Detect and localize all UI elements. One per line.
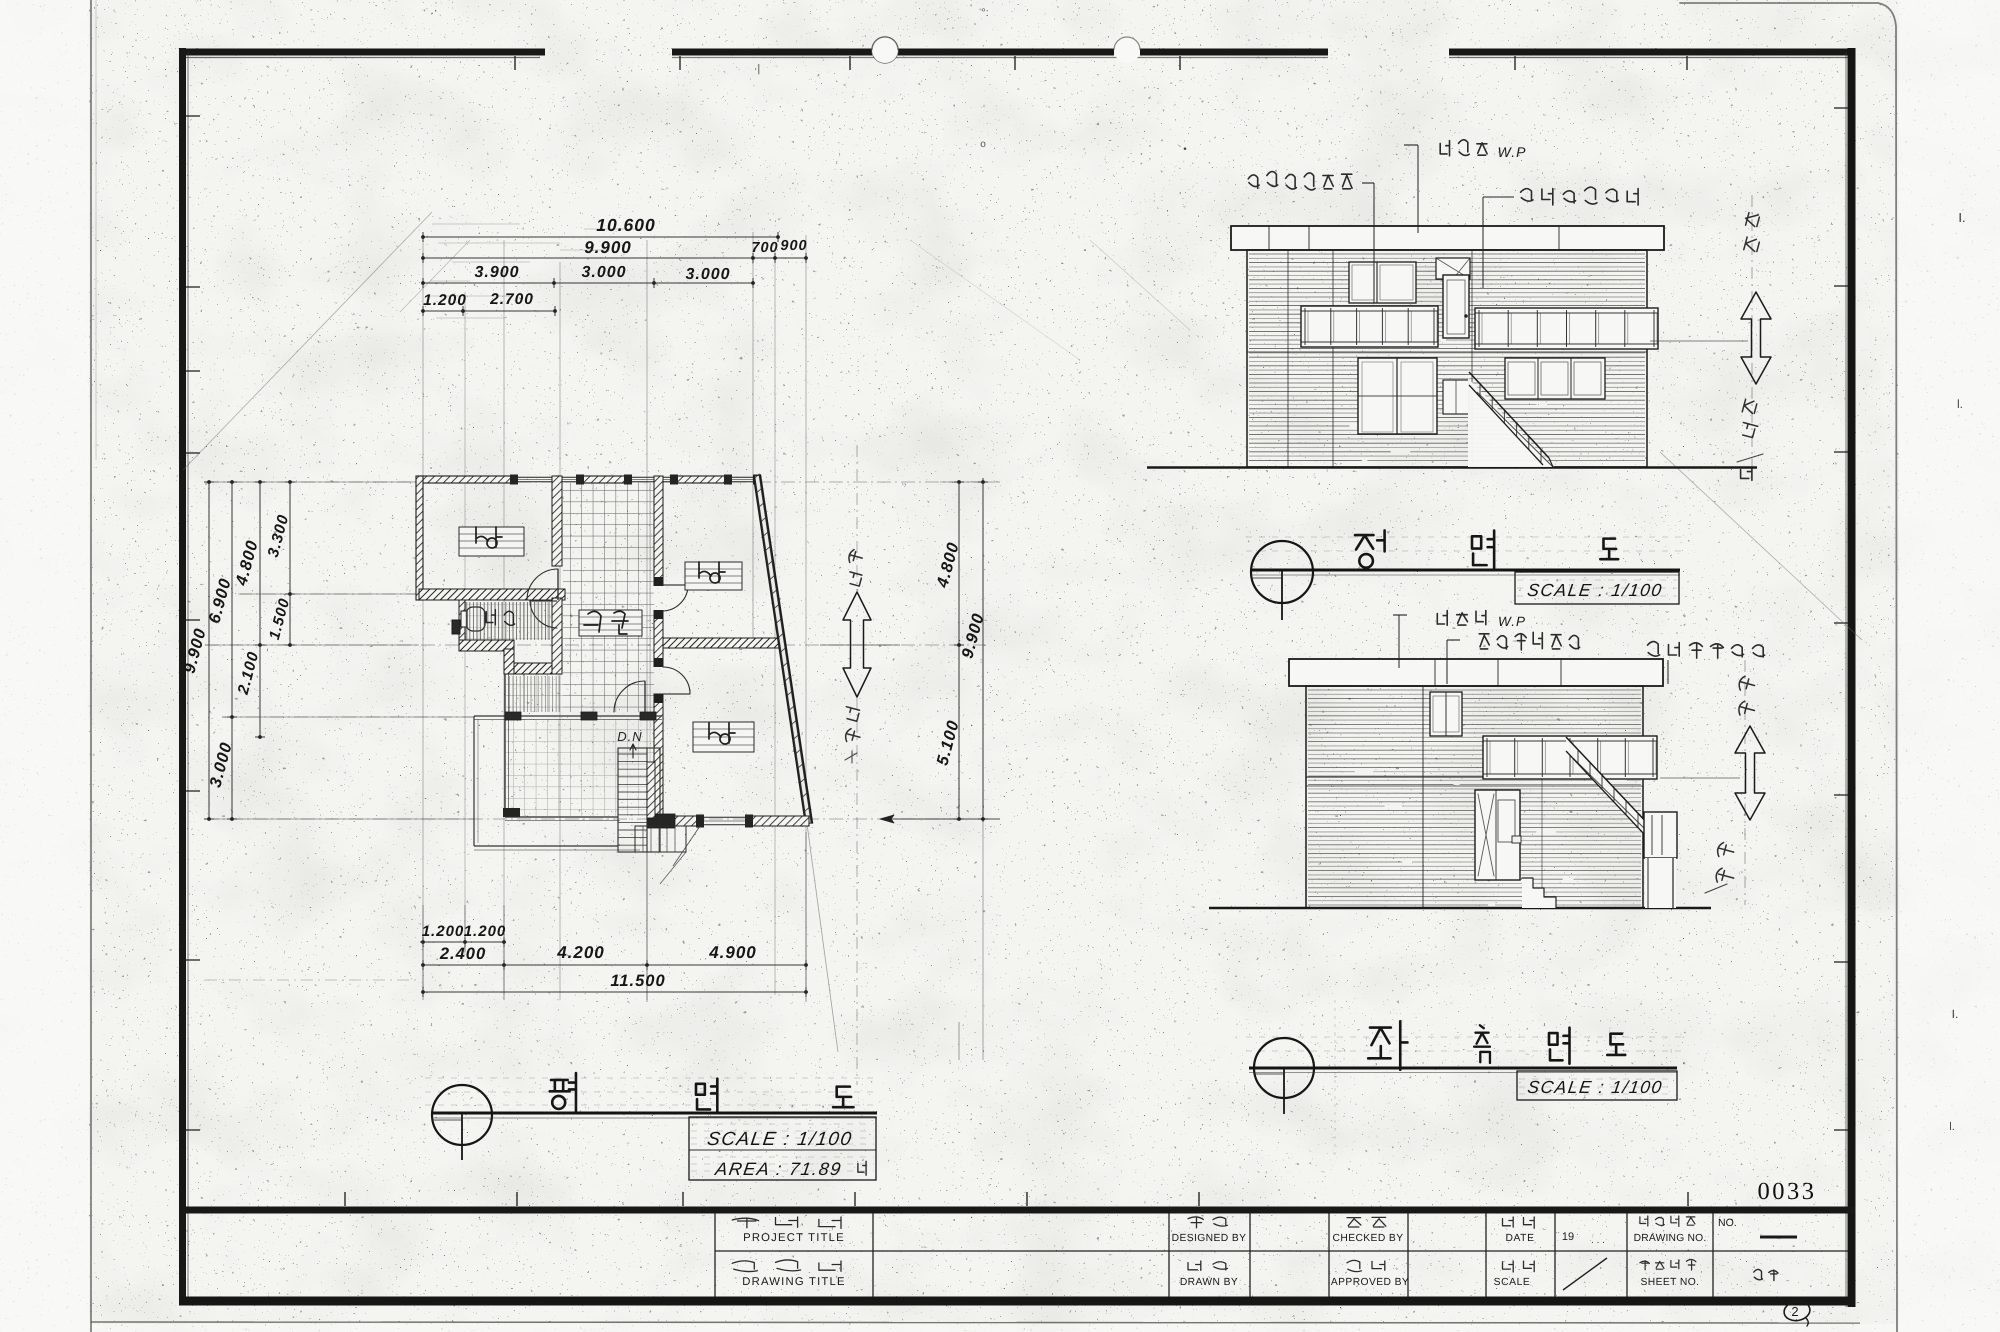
- svg-text:W.P: W.P: [1498, 144, 1527, 160]
- svg-text:SCALE : 1/100: SCALE : 1/100: [706, 1129, 854, 1150]
- svg-text:11.500: 11.500: [610, 972, 665, 990]
- svg-text:. . .: . . .: [1591, 1235, 1605, 1246]
- svg-text:SHEET NO.: SHEET NO.: [1641, 1277, 1700, 1288]
- svg-text:AREA : 71.89: AREA : 71.89: [713, 1159, 843, 1179]
- svg-text:CHECKED BY: CHECKED BY: [1333, 1233, 1404, 1244]
- svg-text:•: •: [1183, 144, 1187, 155]
- svg-text:3.900: 3.900: [474, 264, 519, 281]
- svg-text:DATE: DATE: [1505, 1233, 1534, 1244]
- svg-text:19: 19: [1562, 1231, 1574, 1243]
- svg-text:APPROVED BY: APPROVED BY: [1331, 1277, 1409, 1288]
- svg-text:l.: l.: [1949, 1121, 1955, 1133]
- svg-text:4.900: 4.900: [708, 943, 757, 962]
- svg-text:4.200: 4.200: [556, 943, 605, 962]
- svg-text:DRAWING NO.: DRAWING NO.: [1634, 1233, 1707, 1244]
- svg-text:1.200: 1.200: [464, 923, 507, 940]
- svg-text:SCALE: SCALE: [1494, 1277, 1531, 1288]
- svg-text:0033: 0033: [1758, 1178, 1817, 1205]
- svg-text:PROJECT TITLE: PROJECT TITLE: [743, 1232, 845, 1244]
- svg-text:1.200: 1.200: [423, 292, 467, 309]
- svg-text:°:: °:: [981, 7, 988, 19]
- svg-text:DRAWN BY: DRAWN BY: [1180, 1277, 1238, 1288]
- svg-text:3.000: 3.000: [685, 266, 730, 283]
- svg-text:DRAWING TITLE: DRAWING TITLE: [742, 1276, 845, 1288]
- svg-text:l.: l.: [1957, 397, 1963, 411]
- svg-text:.·: .·: [430, 3, 437, 17]
- svg-text:W.P: W.P: [1498, 614, 1526, 629]
- svg-text:NO.: NO.: [1718, 1217, 1737, 1229]
- svg-text:2.700: 2.700: [489, 291, 534, 308]
- svg-text:SCALE : 1/100: SCALE : 1/100: [1526, 1077, 1664, 1097]
- svg-text:I.: I.: [1952, 1007, 1959, 1021]
- svg-text:700: 700: [751, 240, 778, 256]
- svg-text:2.400: 2.400: [439, 945, 486, 963]
- svg-text:DESIGNED BY: DESIGNED BY: [1172, 1233, 1247, 1244]
- svg-text:SCALE : 1/100: SCALE : 1/100: [1526, 580, 1664, 600]
- svg-text:I.: I.: [1958, 210, 1965, 225]
- svg-text:9.900: 9.900: [584, 238, 632, 257]
- svg-text:·|: ·|: [754, 63, 761, 75]
- svg-text:900: 900: [780, 238, 807, 254]
- svg-text:o: o: [980, 139, 986, 150]
- svg-text:3.000: 3.000: [581, 264, 626, 281]
- svg-text:D.N: D.N: [617, 729, 642, 744]
- svg-text:1.200: 1.200: [422, 923, 465, 940]
- svg-text:10.600: 10.600: [596, 215, 656, 235]
- svg-text:2: 2: [1791, 1304, 1798, 1319]
